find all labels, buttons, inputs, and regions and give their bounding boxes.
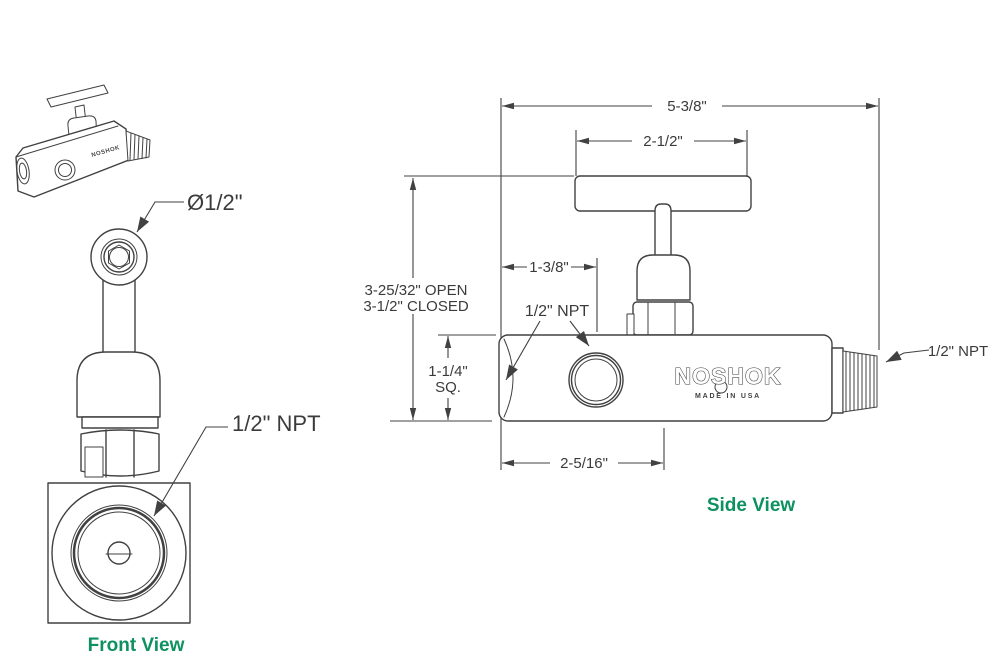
side-nut-tab [627,314,634,335]
side-port-label-right-text: 1/2" NPT [928,343,988,360]
technical-drawing-canvas: NOSHOK Ø1/2" 1/2" NPT Front View [0,0,1000,664]
thumb-handle-bar [47,85,108,107]
side-body [499,335,832,421]
dim-port-offset-text: 1-3/8" [529,259,569,276]
handle-diameter-label: Ø1/2" [187,190,243,215]
dim-overall-length: 5-3/8" [502,98,878,115]
brand-logo-text: NOSHOK [675,363,782,389]
front-port-label: 1/2" NPT [232,411,321,436]
front-view: Ø1/2" 1/2" NPT Front View [48,190,321,656]
made-in-usa-label: MADE IN USA [695,393,761,400]
side-outlet-collar [832,348,843,413]
handle-diameter-leader [137,202,184,232]
dim-body-square-suffix: SQ. [435,379,461,396]
dim-body-square: 1-1/4" SQ. [428,336,468,420]
outlet-leader [886,350,929,362]
dim-height-open-text: 3-25/32" OPEN [365,282,468,299]
side-male-thread [843,351,877,412]
dim-body-square-text: 1-1/4" [428,363,468,380]
valve-3d-thumbnail: NOSHOK [15,85,150,197]
front-body-square [48,483,190,623]
side-view-title: Side View [707,495,796,516]
side-view: 5-3/8" 2-1/2" 1-3/8" 3-25/32" OPEN 3-1/2… [363,98,988,516]
side-port-label-right: 1/2" NPT [886,343,988,362]
front-stem [103,278,135,354]
front-nut-slot [85,447,103,477]
side-stem [655,204,671,258]
dim-port-offset: 1-3/8" [502,259,596,276]
front-view-title: Front View [88,635,185,656]
dim-height-closed-text: 3-1/2" CLOSED [363,298,469,315]
dim-body-length: 2-5/16" [502,455,663,472]
dim-overall-length-text: 5-3/8" [667,98,707,115]
side-hex-nut [633,302,693,335]
dim-handle-width-text: 2-1/2" [643,133,683,150]
side-port-label-left-text: 1/2" NPT [525,303,590,320]
valve-technical-drawing-page: NOSHOK Ø1/2" 1/2" NPT Front View [0,0,1000,664]
dim-handle-width: 2-1/2" [577,133,746,150]
front-bonnet [77,352,160,417]
dim-body-length-text: 2-5/16" [560,455,608,472]
front-handle-circle [91,229,147,285]
side-bonnet [637,255,690,300]
front-bonnet-flange [82,417,158,428]
